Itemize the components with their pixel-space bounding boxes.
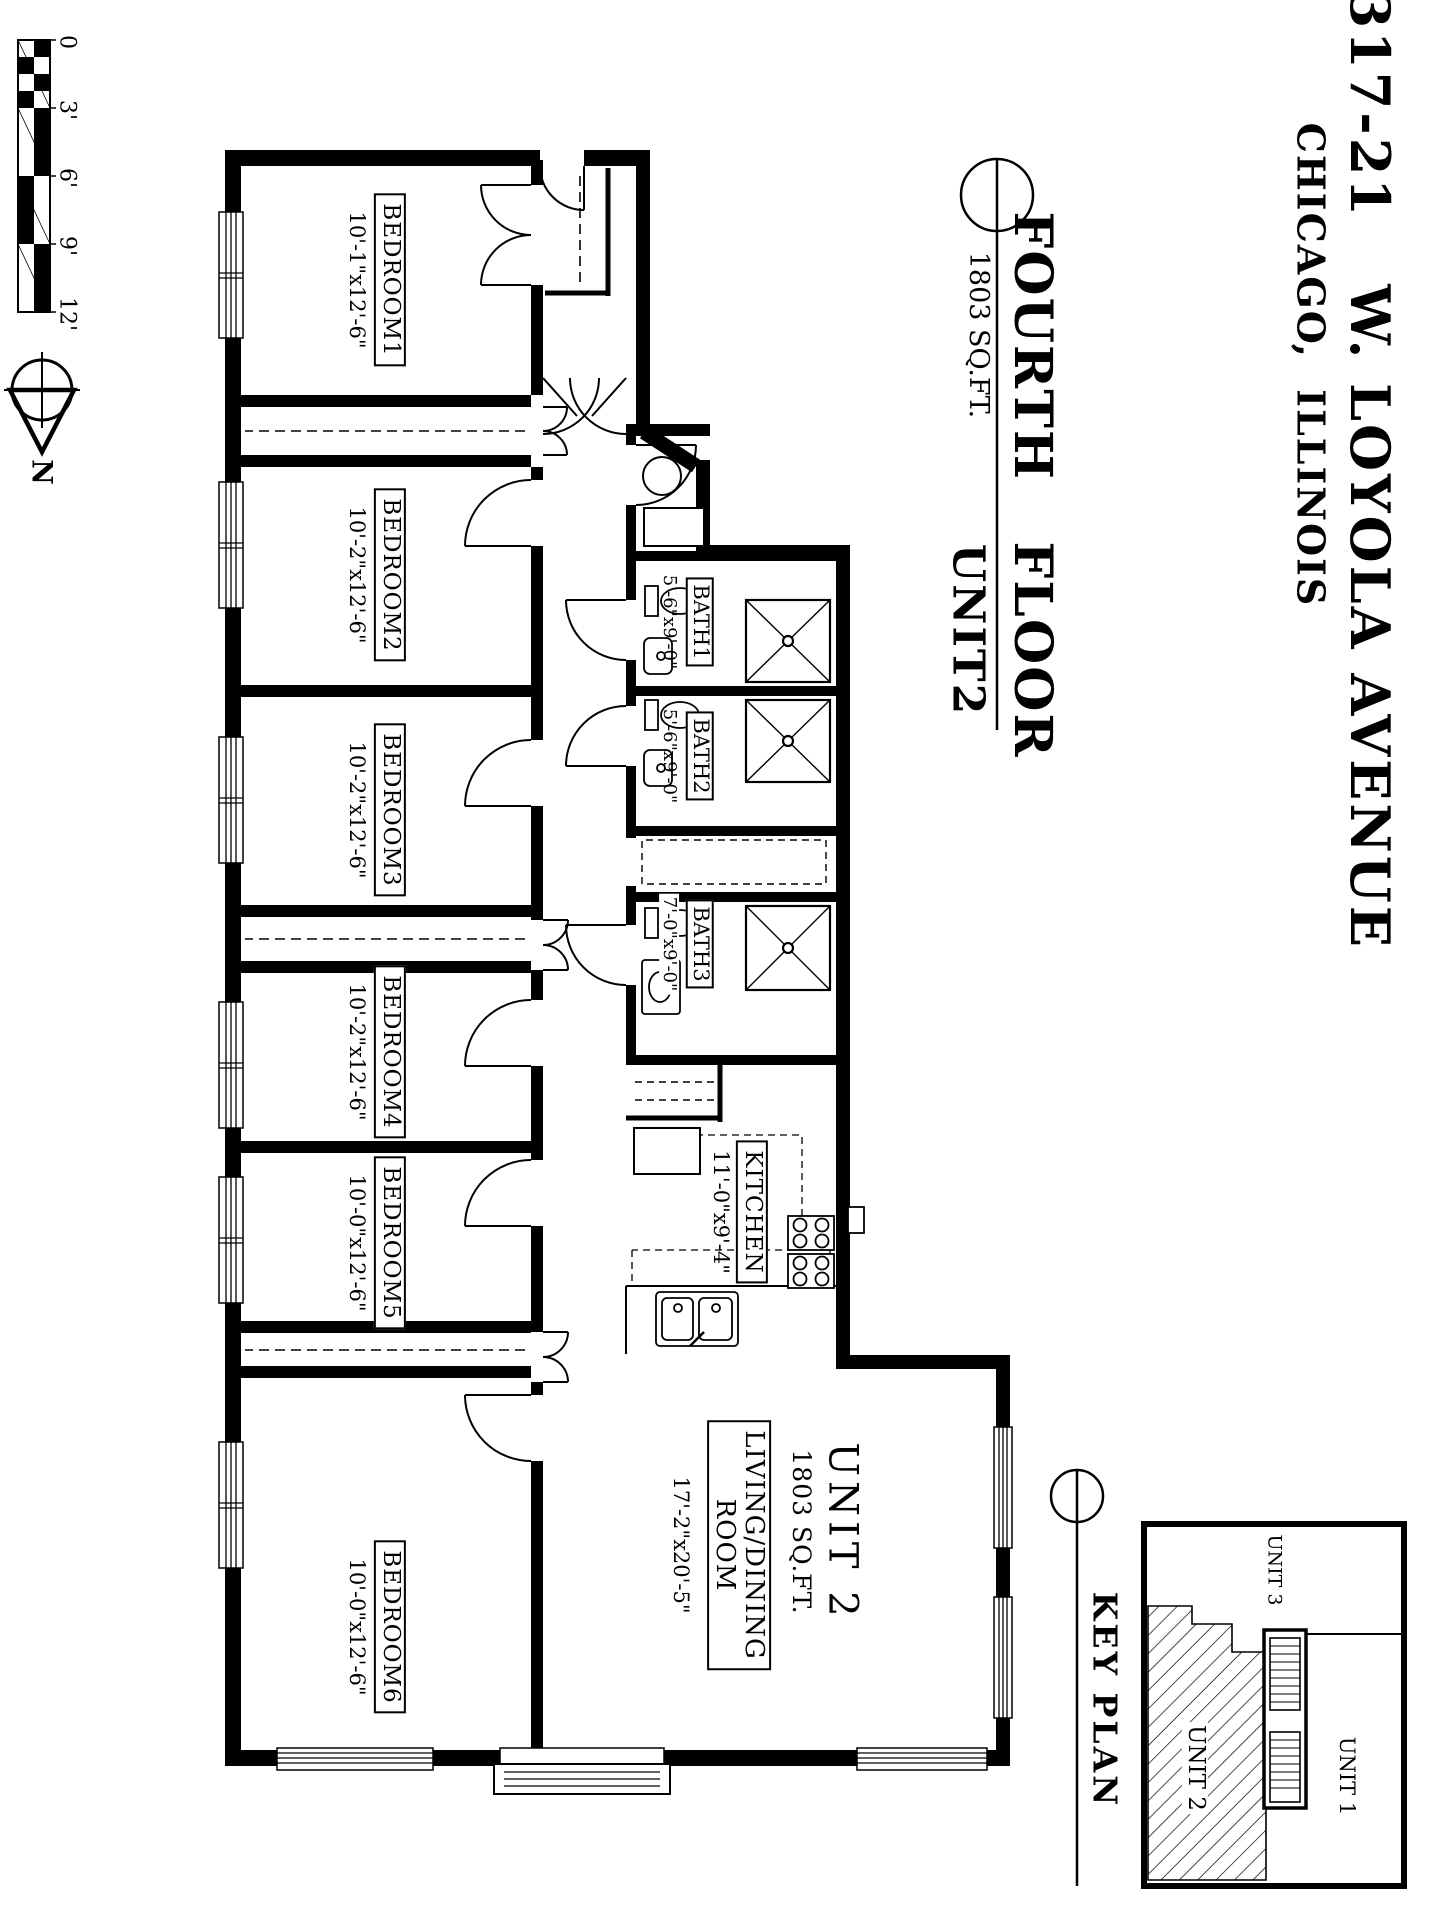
floor-plan-sheet: 1317-21 W. LOYOLA AVENUE CHICAGO, ILLINO… xyxy=(0,0,1442,1920)
exterior-walls xyxy=(225,150,1010,1766)
room-label-bedroom6: BEDROOM6 xyxy=(374,1540,406,1713)
room-dims-bath3: 7'-0"x9'-0" xyxy=(659,894,679,995)
living-label-line1: LIVING/DINING xyxy=(739,1430,769,1660)
windows xyxy=(219,212,1012,1794)
utility-fixtures xyxy=(643,457,704,546)
room-dims-bedroom2: 10'-2"x12'-6" xyxy=(344,506,368,643)
scale-tick-0: 0 xyxy=(54,35,79,49)
doors xyxy=(465,166,696,1461)
scale-tick-12: 12' xyxy=(54,297,79,331)
refrigerator xyxy=(634,1128,700,1174)
room-label-bath3: BATH3 xyxy=(686,899,714,988)
room-dims-bedroom5: 10'-0"x12'-6" xyxy=(344,1174,368,1311)
room-dims-kitchen: 11'-0"x9'-4" xyxy=(708,1150,732,1274)
scale-tick-6: 6' xyxy=(54,168,79,188)
room-label-bedroom3: BEDROOM3 xyxy=(374,723,406,896)
vent-box xyxy=(848,1207,864,1233)
room-dims-living-dining: 17'-2"x20'-5" xyxy=(668,1476,692,1613)
kitchen-sink xyxy=(656,1292,738,1346)
floor-area: 1803 SQ.FT. xyxy=(963,252,993,419)
room-label-bedroom1: BEDROOM1 xyxy=(374,193,406,366)
water-heater xyxy=(643,457,681,495)
key-plan-unit2-label: UNIT 2 xyxy=(1182,1722,1208,1814)
sheet-city: CHICAGO, ILLINOIS xyxy=(1289,123,1332,608)
floor-unit: UNIT2 xyxy=(943,544,992,717)
room-label-bedroom4: BEDROOM4 xyxy=(374,965,406,1138)
room-dims-bedroom4: 10'-2"x12'-6" xyxy=(344,983,368,1120)
shower-stalls xyxy=(746,600,830,990)
drawing-page: 1317-21 W. LOYOLA AVENUE CHICAGO, ILLINO… xyxy=(0,0,1442,1920)
room-label-bath1: BATH1 xyxy=(686,577,714,666)
room-dims-bedroom1: 10'-1"x12'-6" xyxy=(344,211,368,348)
key-plan-unit3-label: UNIT 3 xyxy=(1263,1535,1284,1606)
front-windows xyxy=(277,1748,987,1794)
room-label-bedroom2: BEDROOM2 xyxy=(374,488,406,661)
living-label-line2: ROOM xyxy=(710,1499,740,1592)
scale-tick-3: 3' xyxy=(54,100,79,120)
floor-title: FOURTH FLOOR xyxy=(1003,211,1061,758)
scale-tick-9: 9' xyxy=(54,236,79,256)
room-label-kitchen: KITCHEN xyxy=(736,1140,768,1283)
scale-bar xyxy=(18,40,56,312)
room-label-bath2: BATH2 xyxy=(686,711,714,800)
unit-label: UNIT 2 xyxy=(820,1442,865,1621)
key-plan-unit1-label: UNIT 1 xyxy=(1334,1737,1358,1815)
unit-area: 1803 SQ.FT. xyxy=(787,1449,815,1614)
room-dims-bedroom6: 10'-0"x12'-6" xyxy=(344,1558,368,1695)
room-label-bedroom5: BEDROOM5 xyxy=(374,1156,406,1329)
north-label: N xyxy=(26,459,57,485)
north-compass xyxy=(4,352,80,452)
room-dims-bath2: 5'-6"x9'-0" xyxy=(659,709,679,804)
room-label-living-dining: LIVING/DININGROOM xyxy=(707,1420,771,1670)
laundry-unit xyxy=(644,508,704,546)
room-dims-bath1: 5'-6"x9'-0" xyxy=(659,575,679,670)
room-dims-bedroom3: 10'-2"x12'-6" xyxy=(344,741,368,878)
sheet-address: 1317-21 W. LOYOLA AVENUE xyxy=(1340,0,1400,950)
stoves xyxy=(788,1216,834,1288)
key-plan-title: KEY PLAN xyxy=(1086,1592,1123,1809)
